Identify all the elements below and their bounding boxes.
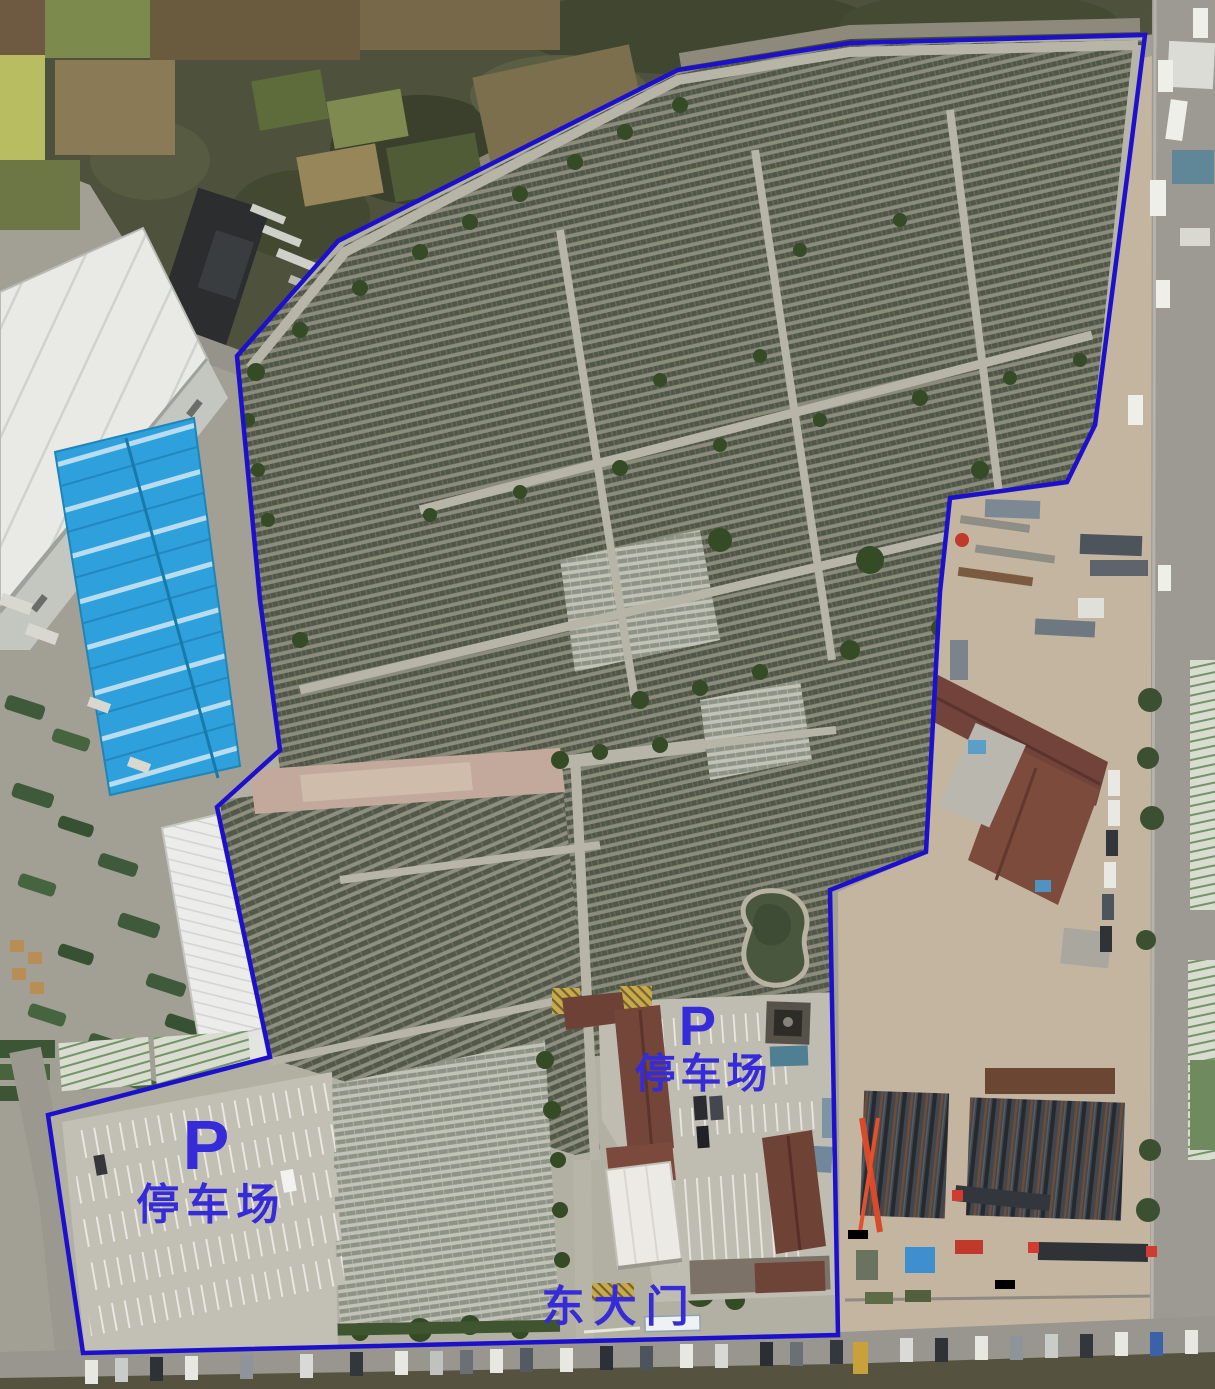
parking-west-symbol: P — [183, 1110, 230, 1180]
yellow-truck — [853, 1342, 868, 1374]
car — [709, 1096, 724, 1121]
parking-center-symbol: P — [679, 998, 716, 1054]
service-building — [606, 1162, 682, 1268]
parking-center-label: 停车场 — [634, 1053, 772, 1094]
pond — [743, 891, 807, 986]
car — [696, 1126, 710, 1149]
car — [693, 1096, 708, 1121]
grave-blocks-light — [330, 1040, 560, 1335]
parking-west-label: 停车场 — [136, 1184, 286, 1227]
aerial-map: P 停车场 P 停车场 东大门 — [0, 0, 1215, 1389]
east-gate-label: 东大门 — [542, 1287, 698, 1330]
